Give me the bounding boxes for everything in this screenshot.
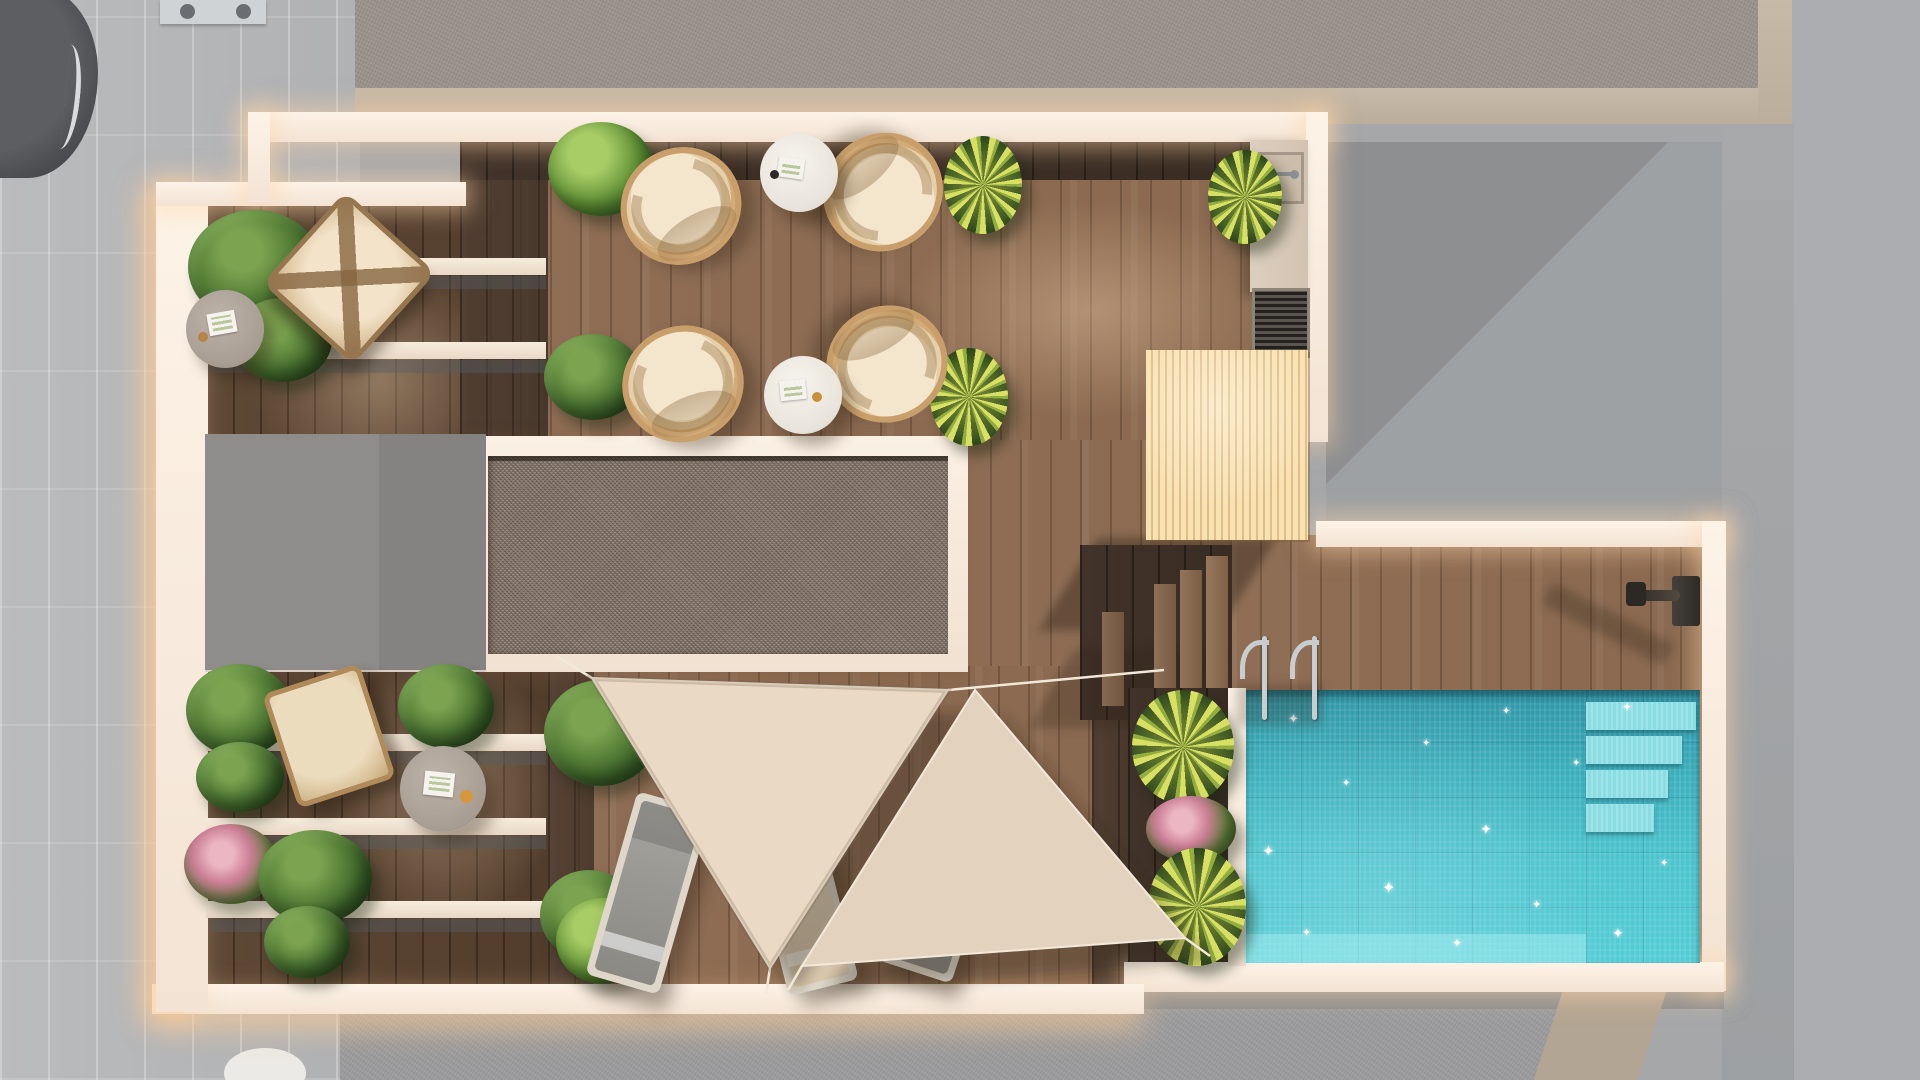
rooftop-terrace-render: ✦ ✦ ✦ ✦ ✦ ✦ ✦ ✦ ✦ ✦ ✦ ✦ ✦ ✦ [0, 0, 1920, 1080]
shade-sails-layer [0, 0, 1920, 1080]
